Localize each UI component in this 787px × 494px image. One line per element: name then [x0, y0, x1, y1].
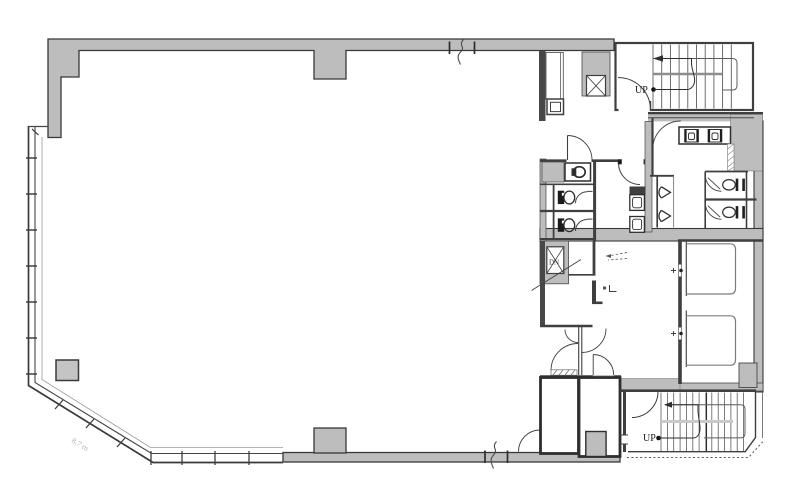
- svg-text:UP: UP: [643, 433, 656, 444]
- svg-text:UP: UP: [635, 85, 648, 96]
- svg-text:DN: DN: [549, 259, 559, 267]
